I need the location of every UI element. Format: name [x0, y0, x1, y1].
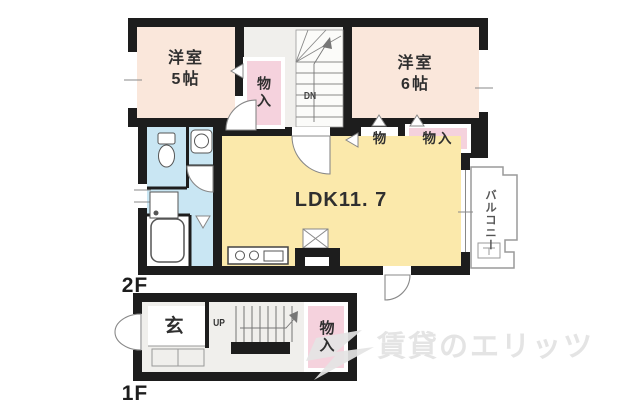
stair-handrail	[231, 342, 290, 354]
stove-icon	[303, 229, 328, 248]
door-ldk-south	[385, 275, 410, 300]
kitchen-partition	[295, 248, 340, 266]
closet-1f-label: 物入	[310, 308, 342, 366]
closet-mono-label: 物	[361, 129, 398, 149]
floor1-label: 1F	[116, 383, 154, 404]
floorplan-image: 洋室 5帖 洋室 6帖 LDK11. 7 物入 物 物入 バルコニー DN 玄 …	[0, 0, 640, 416]
bedroom-6-label: 洋室 6帖	[352, 53, 479, 95]
washing-machine-icon	[150, 192, 178, 218]
stairs-up-label: UP	[210, 318, 229, 330]
bedroom-5-label: 洋室 5帖	[137, 48, 235, 90]
window-sanitary	[138, 184, 147, 208]
stairs-down-label: DN	[301, 91, 320, 103]
entrance-label: 玄	[157, 315, 191, 339]
window-bedroom6	[479, 50, 488, 112]
kitchen-counter-icon	[228, 247, 288, 264]
floor2-label: 2F	[116, 275, 154, 296]
closet-right-label: 物入	[405, 129, 471, 149]
closet-hall-label: 物入	[248, 63, 280, 123]
toilet-icon	[158, 133, 175, 167]
staircase-2f-area	[296, 30, 343, 127]
balcony-label: バルコニー	[478, 174, 502, 266]
watermark-text: 賃貸のエリッツ	[377, 337, 594, 358]
washbasin-icon	[191, 130, 212, 153]
ldk-label: LDK11. 7	[256, 190, 426, 211]
bathtub-icon	[151, 219, 184, 262]
door-entrance	[115, 314, 141, 350]
